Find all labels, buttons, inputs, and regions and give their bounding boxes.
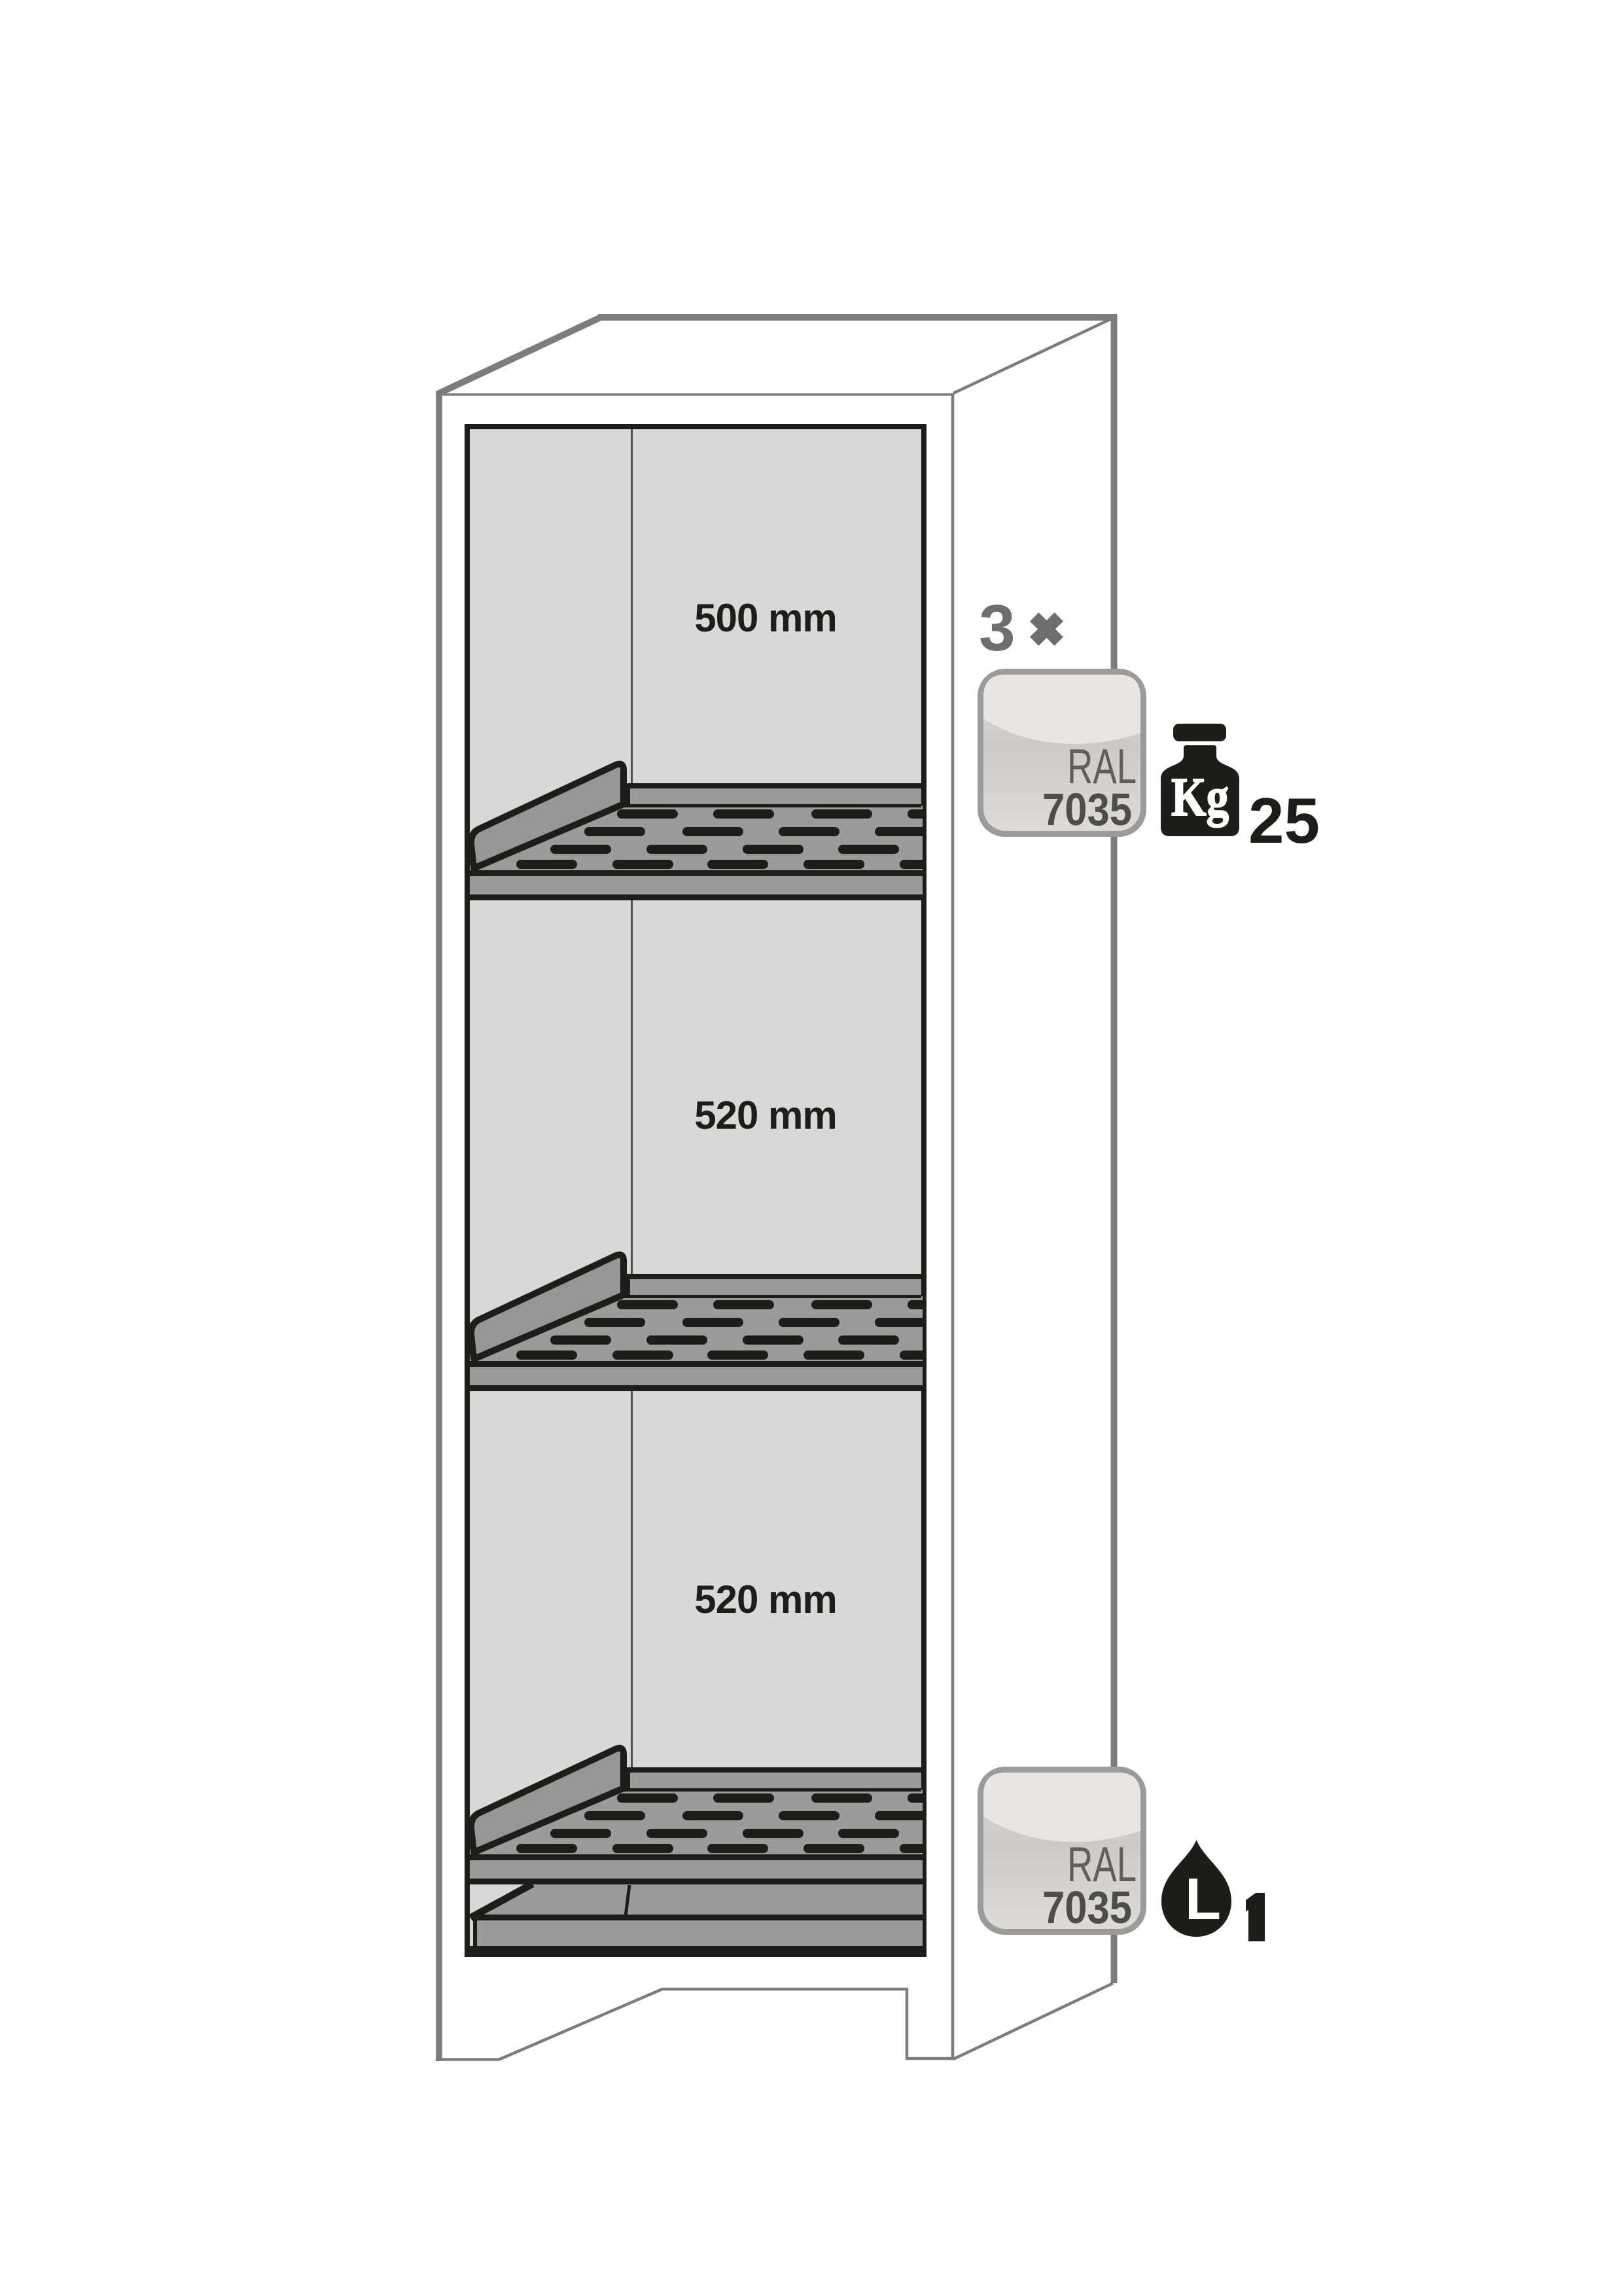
svg-text:L: L [1185, 1867, 1221, 1932]
svg-text:Kg: Kg [1171, 767, 1229, 828]
svg-text:500 mm: 500 mm [694, 596, 836, 640]
svg-text:3: 3 [979, 592, 1015, 665]
svg-text:520 mm: 520 mm [694, 1578, 836, 1621]
svg-text:7035: 7035 [1042, 1882, 1132, 1933]
svg-text:520 mm: 520 mm [694, 1093, 836, 1137]
svg-text:25: 25 [1248, 785, 1320, 857]
svg-text:7035: 7035 [1042, 784, 1132, 835]
